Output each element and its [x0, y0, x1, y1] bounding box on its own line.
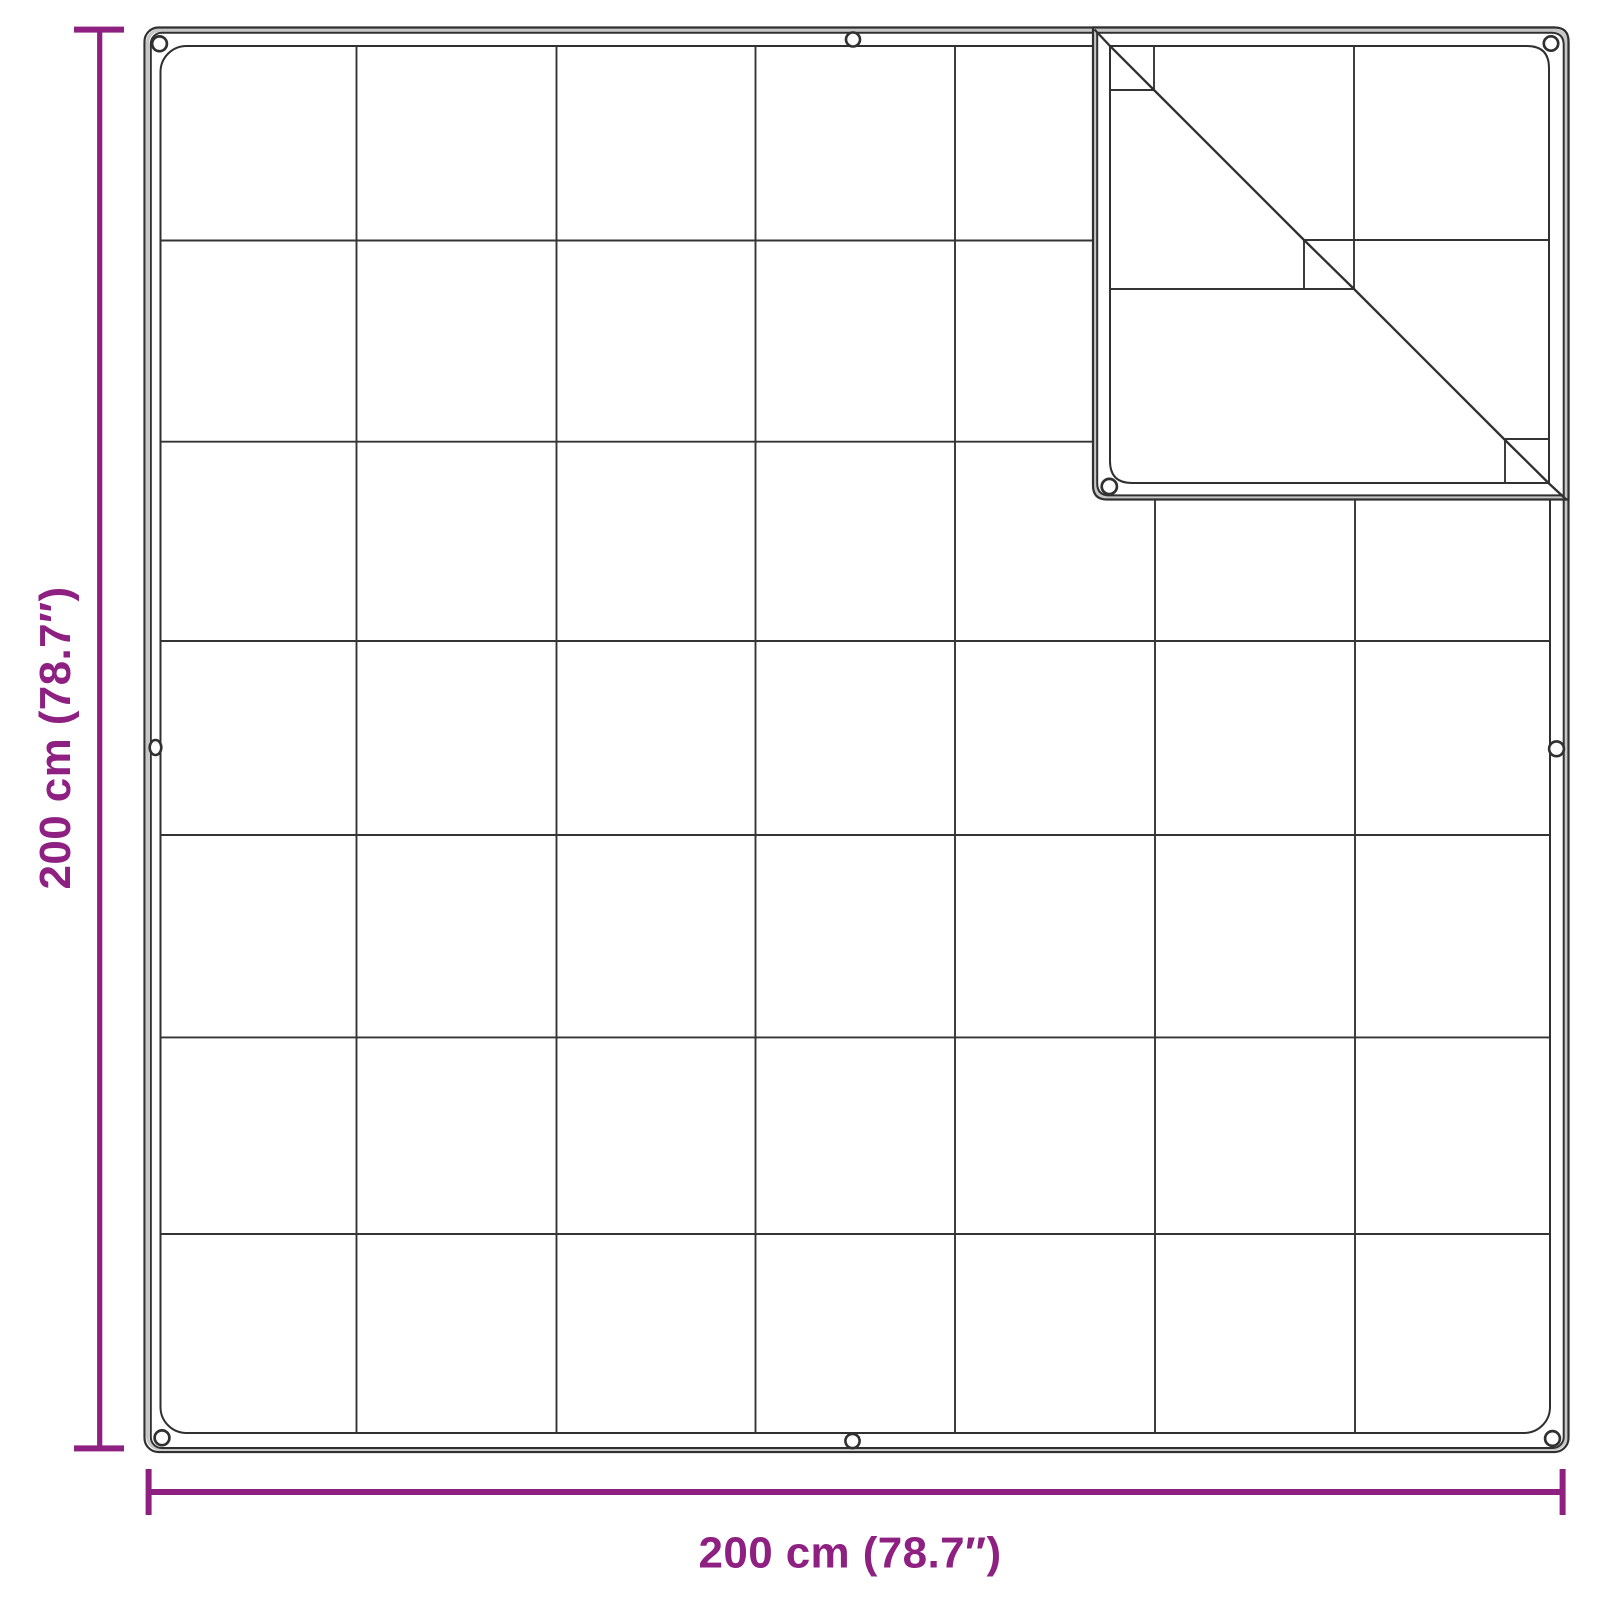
svg-text:200 cm (78.7″): 200 cm (78.7″)	[31, 586, 80, 889]
svg-text:200 cm (78.7″): 200 cm (78.7″)	[698, 1529, 1001, 1578]
